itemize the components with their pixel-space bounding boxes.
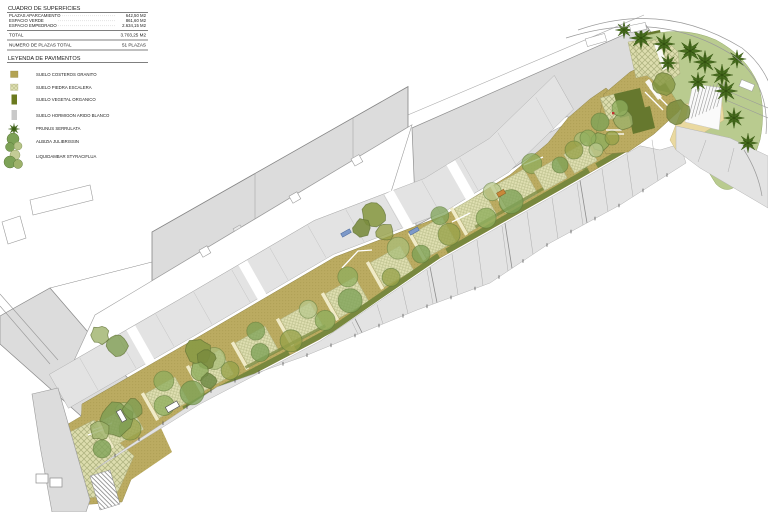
svg-text:CUADRO DE SUPERFICIES: CUADRO DE SUPERFICIES [8, 6, 81, 12]
svg-text:NUMERO DE PLAZAS TOTAL: NUMERO DE PLAZAS TOTAL [9, 43, 72, 48]
svg-text:3.703,25 M2: 3.703,25 M2 [120, 33, 146, 38]
svg-text:LEYENDA DE PAVIMENTOS: LEYENDA DE PAVIMENTOS [8, 56, 81, 62]
svg-text:51 PLAZAS: 51 PLAZAS [122, 43, 146, 48]
svg-text:PRUNUS SERRULATA: PRUNUS SERRULATA [36, 126, 81, 131]
svg-text:TOTAL: TOTAL [9, 33, 24, 38]
svg-text:SUELO HORMIGON ARIDO BLANCO: SUELO HORMIGON ARIDO BLANCO [36, 113, 110, 118]
svg-text:ESPACIO EMPEDRADO: ESPACIO EMPEDRADO [9, 23, 57, 28]
svg-text:SUELO COSTEROS GRANITO: SUELO COSTEROS GRANITO [36, 72, 97, 77]
svg-text:SUELO VEGETAL ORGANICO: SUELO VEGETAL ORGANICO [36, 97, 96, 102]
svg-text:2.634,15 M2: 2.634,15 M2 [122, 23, 146, 28]
svg-text:LIQUIDAMBAR STYRACIFLUA: LIQUIDAMBAR STYRACIFLUA [36, 154, 97, 159]
svg-text:SUELO PIEDRA ESCALERA: SUELO PIEDRA ESCALERA [36, 85, 92, 90]
svg-text:ALBIZIA JULIBRISSIN: ALBIZIA JULIBRISSIN [36, 139, 79, 144]
